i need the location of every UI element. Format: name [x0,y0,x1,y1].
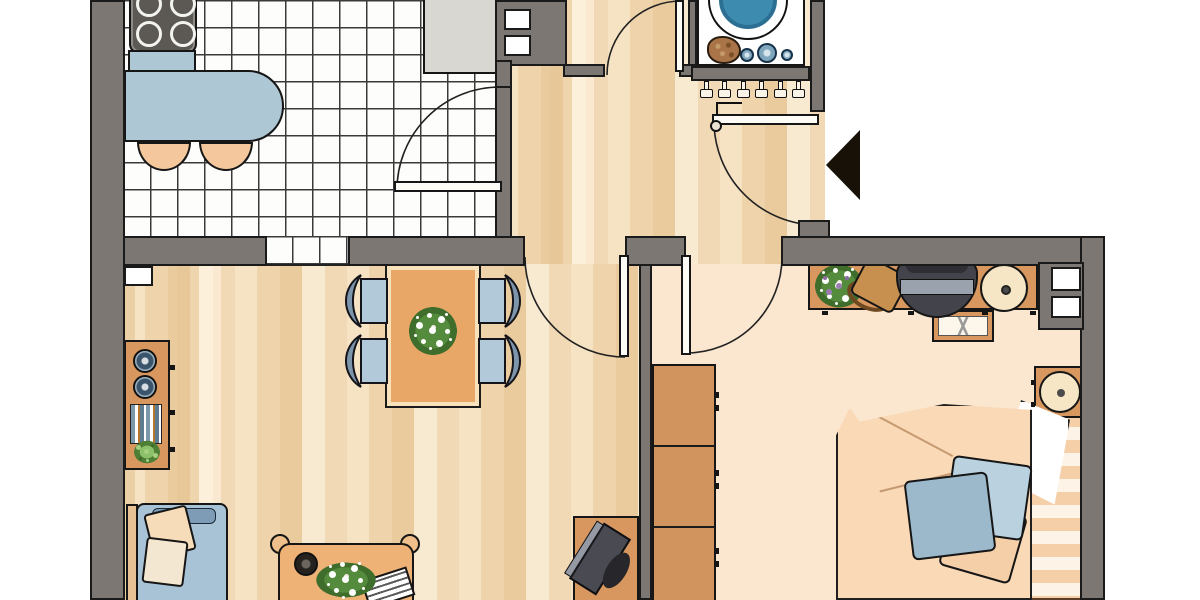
burner [136,21,162,47]
coat-hook-icon [700,81,712,98]
nightstand-knobs [1031,380,1035,385]
dining-chair-backrest [502,332,526,390]
wall-door-pier [625,236,686,266]
coat-hooks [700,81,804,99]
wall-kitchen-shaft-stub [495,60,512,88]
coat-hook-icon [774,81,786,98]
washer-knob [740,48,754,62]
entrance-door-hinge [710,120,722,132]
dining-chair-backrest [340,332,364,390]
burner [170,21,196,47]
corner-shaft-box-2 [1051,296,1081,318]
living-door-leaf [619,255,629,357]
bedroom-door-leaf [681,255,691,355]
wall-entry-top [810,0,825,112]
wall-bath-left-stub [563,64,605,77]
wall-dining-top [348,236,525,266]
entrance-arrow [826,130,860,200]
sink-counter [423,0,497,74]
speaker-icon [133,375,157,399]
shaft-box-1 [504,9,531,30]
bed-pillow-blue [903,471,996,561]
radiator [124,266,153,286]
sideboard [124,340,170,470]
desk-lamp [980,264,1028,312]
coat-hook-icon [792,81,804,98]
dining-chair-seat [360,338,388,384]
burner [170,0,196,17]
wall-laundry-bottom [691,66,810,81]
bedside-lamp-center [1057,389,1065,397]
dining-chair-backrest [502,272,526,330]
coffee-table-plant [310,559,382,600]
wall-kitchen-bottom [123,236,267,266]
stove-cooktop [129,0,197,54]
wardrobe [652,364,716,600]
coffee-table [278,543,414,600]
washer-knob [757,43,777,63]
desk-edge-knobs [822,311,828,315]
dining-chair-seat [360,278,388,324]
sofa [136,503,228,600]
wall-bath-laundry-sep [688,0,697,66]
sideboard-knobs [170,365,175,370]
wall-left-outer [90,0,125,600]
office-chair-seat-band [900,279,974,295]
bedside-lamp [1039,371,1081,413]
burner [136,0,162,17]
desk-lamp-center [1001,285,1011,295]
coat-hook-icon [718,81,730,98]
bathroom-door-leaf [675,0,684,72]
wall-room-divider [639,264,652,600]
wardrobe-handles [714,392,719,398]
wall-kitchen-right [495,84,512,238]
speaker-icon [133,349,157,373]
shaft-box-2 [504,35,531,56]
sideboard-plant [131,438,163,466]
coat-hook-icon [737,81,749,98]
sofa-pillow [141,537,188,588]
laundry-basket [707,36,741,64]
coat-hook-icon [755,81,767,98]
corner-shaft-box-1 [1051,267,1081,291]
dining-chair-backrest [340,272,364,330]
duvet-crease [873,413,953,457]
washing-machine [697,0,805,66]
entrance-door-leaf [712,114,819,125]
washer-knob [781,49,793,61]
entrance-door-handle [716,102,742,115]
breakfast-counter [124,70,284,142]
kitchen-pass-through-floor [265,236,349,266]
floor-plan [0,0,1200,600]
side-chair-cushion [938,316,988,336]
kitchen-door-leaf [394,181,502,192]
